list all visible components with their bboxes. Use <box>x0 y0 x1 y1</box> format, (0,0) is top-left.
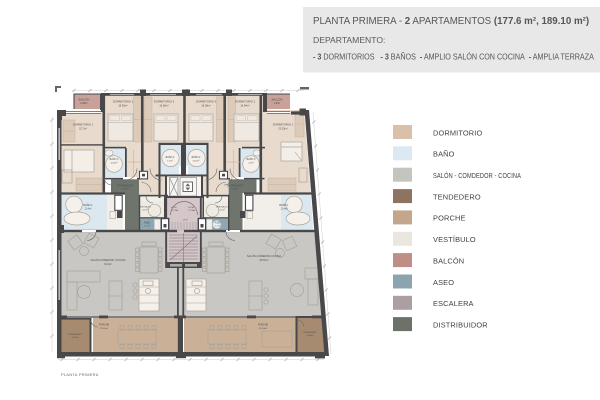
svg-text:1.2m²: 1.2m² <box>215 225 221 228</box>
svg-text:11.4m²: 11.4m² <box>281 207 288 210</box>
svg-text:1.5m²: 1.5m² <box>167 159 173 162</box>
svg-text:DISTRIBUIDOR: DISTRIBUIDOR <box>227 186 244 188</box>
svg-text:PLANTA PRIMERA - 2 APARTAMENTO: PLANTA PRIMERA - 2 APARTAMENTOS (177.6 m… <box>313 16 589 27</box>
svg-text:ESCALERA: ESCALERA <box>433 299 474 308</box>
svg-text:2.5m²: 2.5m² <box>248 161 254 164</box>
svg-text:21.63m²: 21.63m² <box>259 327 267 330</box>
svg-text:DORMITORIO 1: DORMITORIO 1 <box>273 123 294 127</box>
svg-text:BAÑO 2: BAÑO 2 <box>192 156 201 159</box>
svg-text:VESTÍBULO: VESTÍBULO <box>433 235 476 244</box>
svg-text:ASEO: ASEO <box>144 222 151 225</box>
svg-text:T.CCAA: T.CCAA <box>188 209 195 212</box>
svg-text:1.B VA: 1.B VA <box>188 206 194 209</box>
svg-text:P.COSA: P.COSA <box>171 209 179 212</box>
svg-text:SL 3%: SL 3% <box>171 207 177 209</box>
svg-text:22.7m²: 22.7m² <box>79 127 87 130</box>
svg-text:DORMITORIO 1: DORMITORIO 1 <box>73 123 94 127</box>
svg-text:PORCHE: PORCHE <box>99 324 110 327</box>
svg-text:2.98m²: 2.98m² <box>80 102 88 105</box>
svg-text:5.62m²: 5.62m² <box>72 336 79 339</box>
svg-text:1.98m²: 1.98m² <box>122 188 129 191</box>
svg-text:DISTRIBUIDOR: DISTRIBUIDOR <box>433 320 488 329</box>
svg-text:TENDEDERO: TENDEDERO <box>303 332 317 334</box>
svg-text:DORMITORIO 3: DORMITORIO 3 <box>196 100 217 104</box>
svg-text:ASEO: ASEO <box>433 278 454 287</box>
svg-text:1.98m²: 1.98m² <box>232 188 239 191</box>
svg-text:DORMITORIO 2: DORMITORIO 2 <box>113 100 134 104</box>
svg-text:21.63m²: 21.63m² <box>100 327 108 330</box>
svg-text:3.06m²: 3.06m² <box>111 161 118 164</box>
svg-text:PORCHE: PORCHE <box>433 214 466 223</box>
svg-text:62.2m²: 62.2m² <box>104 263 112 266</box>
svg-text:4.7m²: 4.7m² <box>142 209 148 212</box>
svg-text:TENDEDERO: TENDEDERO <box>68 334 82 336</box>
svg-text:DISTRIBUIDOR: DISTRIBUIDOR <box>117 186 134 188</box>
svg-text:16.94m²: 16.94m² <box>240 104 249 107</box>
svg-text:- 3 DORMITORIOS - 3 BAÑOS -: - 3 DORMITORIOS - 3 BAÑOS - AMPLIO SALÓN… <box>313 52 595 62</box>
svg-text:BAÑO 3: BAÑO 3 <box>110 158 119 161</box>
svg-text:BAÑO 2: BAÑO 2 <box>166 156 175 159</box>
svg-text:PLANTA PRIMERA: PLANTA PRIMERA <box>61 372 99 377</box>
svg-text:SALÓN - COMDEDOR - COCINA: SALÓN - COMDEDOR - COCINA <box>433 171 521 180</box>
svg-text:BAÑO 1: BAÑO 1 <box>279 204 289 207</box>
svg-text:16.38m²: 16.38m² <box>201 104 210 107</box>
svg-text:DORMITORIO 2: DORMITORIO 2 <box>235 100 256 104</box>
svg-text:11.4m²: 11.4m² <box>85 207 92 210</box>
svg-text:1.2m²: 1.2m² <box>144 225 150 228</box>
svg-text:VESTÍBULO: VESTÍBULO <box>216 206 229 209</box>
svg-text:DEPARTAMENTO:: DEPARTAMENTO: <box>313 35 385 45</box>
svg-text:VESTÍBULO: VESTÍBULO <box>139 206 152 209</box>
svg-text:2.9m²: 2.9m² <box>274 102 280 105</box>
svg-text:DORMITORIO 3: DORMITORIO 3 <box>154 100 175 104</box>
svg-text:BAÑO: BAÑO <box>433 150 455 159</box>
svg-text:23.25m²: 23.25m² <box>278 127 287 130</box>
svg-text:3.02m²: 3.02m² <box>193 159 200 162</box>
svg-text:BAÑO 3: BAÑO 3 <box>247 158 256 161</box>
svg-text:68.76m²: 68.76m² <box>260 259 269 262</box>
svg-text:16.38m²: 16.38m² <box>159 104 168 107</box>
svg-text:ASEO: ASEO <box>215 222 222 225</box>
svg-text:BAÑO 1: BAÑO 1 <box>83 204 93 207</box>
svg-text:TENDEDERO: TENDEDERO <box>433 192 481 201</box>
svg-text:4.7m²: 4.7m² <box>219 209 225 212</box>
svg-text:16.93m²: 16.93m² <box>118 104 127 107</box>
svg-text:DORMITORIO: DORMITORIO <box>433 128 483 137</box>
svg-text:PORCHE: PORCHE <box>258 324 269 327</box>
svg-text:BALCÓN: BALCÓN <box>433 256 464 265</box>
svg-text:1.9m²: 1.9m² <box>182 218 187 221</box>
svg-text:5.48m²: 5.48m² <box>307 334 314 337</box>
